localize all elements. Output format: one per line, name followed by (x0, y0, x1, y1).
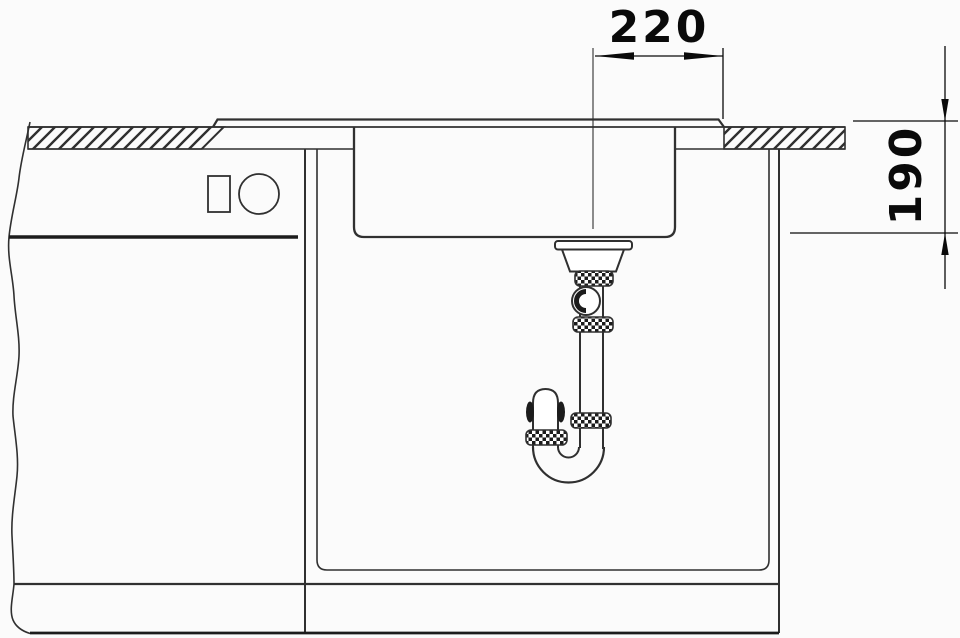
cabinet-interior-outline (317, 149, 769, 570)
dimension-vertical-label: 190 (881, 125, 932, 226)
trap-bend-inner (558, 447, 579, 458)
edge-break-line (9, 122, 30, 634)
arrowhead-up-icon (941, 233, 948, 255)
arrowhead-right-icon (684, 52, 723, 59)
arrowhead-down-icon (941, 99, 948, 121)
countertop-hatch-right (724, 127, 845, 149)
arrowhead-left-icon (595, 52, 634, 59)
base-cabinet (14, 149, 779, 633)
left-appliance (9, 174, 298, 237)
control-button (208, 176, 230, 212)
drain-assembly (555, 241, 632, 449)
dimension-horizontal-label: 220 (609, 2, 710, 53)
sink-bowl (354, 127, 675, 237)
trap-nut-outlet (526, 430, 567, 445)
countertop-hatch-left (28, 127, 224, 149)
trap-bend-outer (533, 447, 604, 483)
sink-installation-section-drawing: 220 190 (0, 0, 960, 638)
drain-flange (555, 241, 632, 250)
trap-outlet-lug-left (526, 402, 534, 423)
trap-outlet-lug-right (557, 402, 565, 423)
sink-rim (213, 120, 724, 128)
drawing-canvas: 220 190 (0, 0, 960, 638)
sink-unit (213, 120, 724, 238)
strainer-body (562, 250, 624, 272)
trap-nut-lower (571, 413, 611, 428)
trap-nut-middle (573, 317, 613, 332)
control-knob (239, 174, 279, 214)
trap-outlet-cap (533, 389, 558, 431)
p-trap (526, 389, 604, 483)
trap-nut-upper (575, 271, 613, 286)
dimension-horizontal: 220 (593, 2, 723, 229)
dimension-vertical: 190 (790, 46, 958, 289)
countertop (28, 127, 845, 149)
